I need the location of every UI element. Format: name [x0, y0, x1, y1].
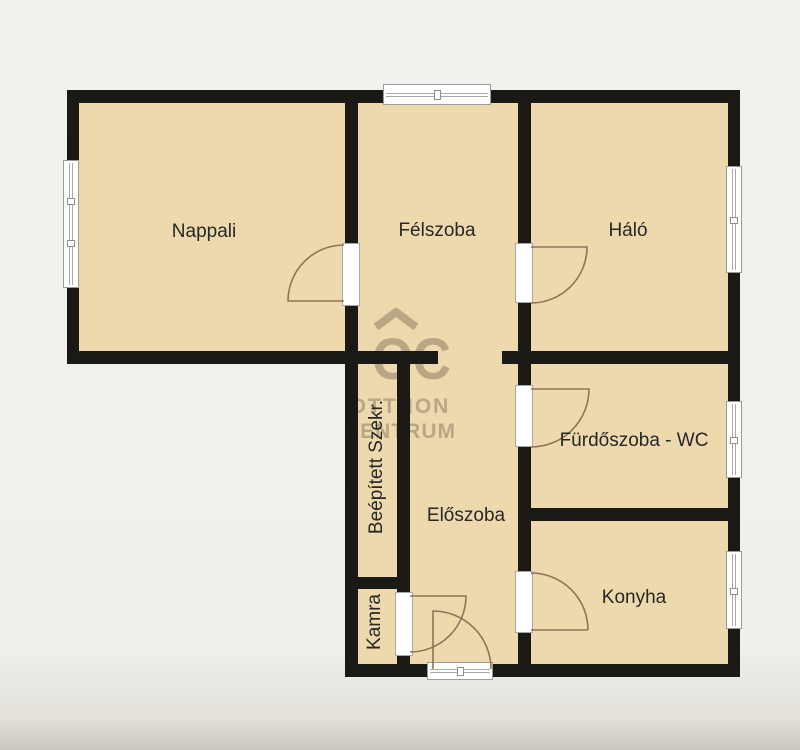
room-label-eloszoba: Előszoba: [427, 505, 505, 527]
room-label-felszoba: Félszoba: [398, 220, 475, 242]
room-label-konyha: Konyha: [602, 587, 666, 609]
room-label-furdoszoba: Fürdőszoba - WC: [560, 430, 709, 452]
door-swing-konyha: [531, 573, 588, 630]
room-label-nappali: Nappali: [172, 221, 236, 243]
floor-plan: OC OTTHON CENTRUM: [0, 0, 800, 750]
room-label-halo: Háló: [608, 220, 647, 242]
door-swing-entry: [433, 611, 491, 669]
door-swing-halo: [531, 247, 587, 303]
door-swing-arcs: [0, 0, 800, 750]
room-label-szekreny: Beépített Szekr.: [366, 400, 388, 534]
door-swing-kamra: [410, 596, 466, 652]
room-label-kamra: Kamra: [364, 594, 386, 650]
door-swing-nappali: [288, 245, 344, 301]
